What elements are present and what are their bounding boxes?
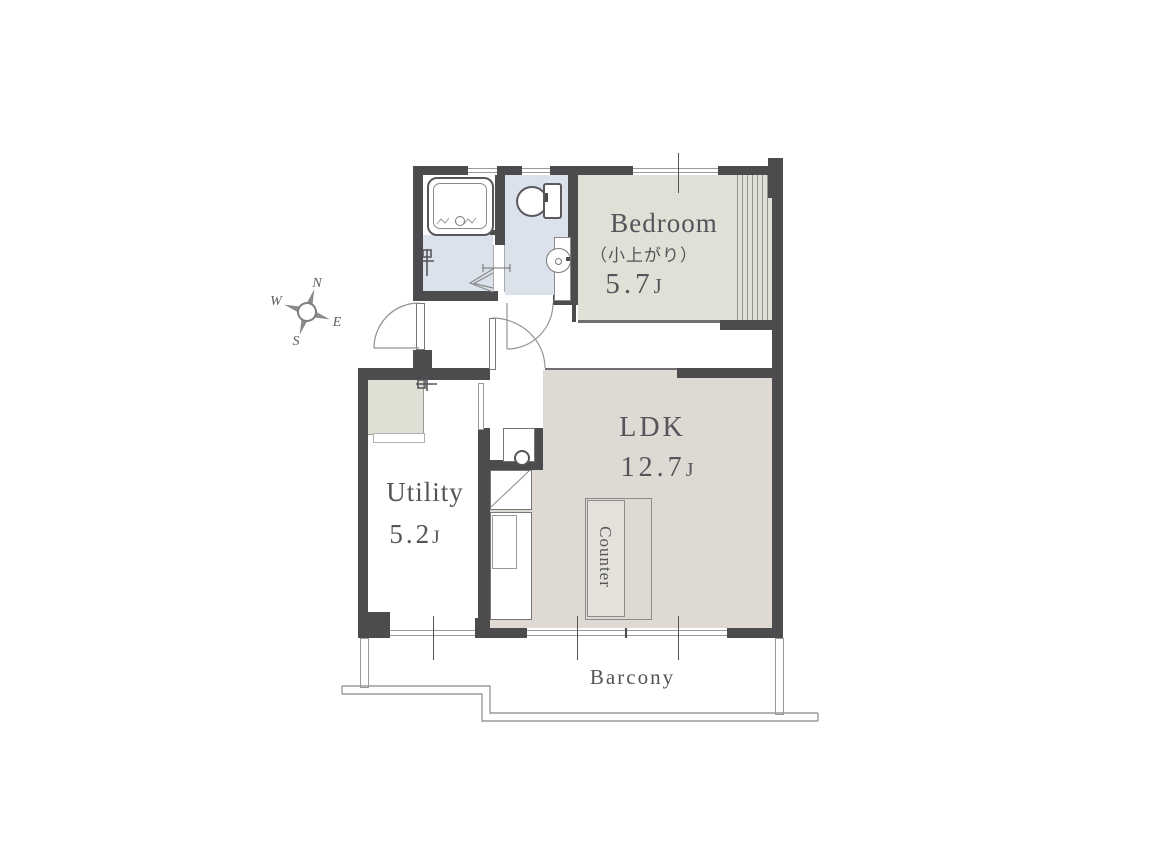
utility-label: Utility (355, 477, 495, 508)
compass-letter-s: S (293, 334, 300, 349)
utility-closet-tray (373, 433, 425, 443)
window-tick-ldk-left (577, 616, 578, 660)
pier-bottom-left (358, 612, 390, 628)
ldk-label: LDK (590, 412, 715, 444)
bedroom-label: Bedroom (574, 208, 754, 239)
wall-washroom-bottom (413, 291, 498, 301)
utility-area-label: 5.2J (350, 519, 480, 550)
refrigerator-space-icon (490, 470, 532, 510)
counter-label: Counter (595, 526, 615, 588)
wall-bedroom-bottom (720, 320, 772, 330)
washbasin-dot (555, 258, 562, 265)
compass-letter-e: E (332, 315, 342, 330)
wall-bottom-c (727, 628, 783, 638)
ldk-top-edge (545, 368, 677, 370)
wall-bath-toilet-divider (495, 166, 505, 245)
bedroom-step-edge (578, 320, 720, 323)
doorway-frame-right (504, 245, 505, 292)
wall-bottom-a (358, 628, 390, 638)
kitchen-counter-inner (492, 515, 517, 569)
window-tick-bedroom (678, 153, 679, 193)
window-tick-utility (433, 616, 434, 660)
window-bathroom (468, 166, 497, 175)
utility-sliding-door (478, 383, 484, 430)
ldk-door-arc (492, 318, 545, 368)
entrance-door-arc (374, 303, 419, 348)
window-toilet (522, 166, 550, 175)
compass-letter-w: W (270, 294, 283, 309)
window-ldk (527, 628, 727, 638)
wall-bedroom-left-thin (572, 303, 576, 322)
floor-plan-canvas: N E S W Bedroom （小上がり） 5.7J LDK 12.7J Ut… (0, 0, 1152, 864)
wall-top-c (550, 166, 633, 175)
toilet-door-arc (507, 303, 553, 349)
wall-utility-top (358, 368, 490, 380)
window-ldk-stile (625, 628, 627, 638)
bedroom-step-stripes (733, 175, 770, 322)
window-tick-ldk-right (678, 616, 679, 660)
pier-top-right (768, 158, 783, 198)
entrance-door-leaf (416, 303, 425, 350)
ldk-area-label: 12.7J (585, 452, 730, 484)
balcony-outline (342, 686, 818, 721)
wall-ldk-top (677, 368, 772, 378)
doorway-frame-left (493, 245, 494, 292)
toilet-button (545, 193, 548, 202)
balcony-post-right (775, 638, 784, 715)
bathtub-drain (455, 216, 465, 226)
bedroom-note-label: （小上がり） (564, 241, 724, 266)
utility-closet (367, 378, 424, 435)
wall-bottom-b (475, 628, 527, 638)
ldk-door-leaf (489, 318, 496, 370)
kitchen-sink-icon (514, 450, 530, 466)
compass-icon: N E S W (270, 276, 342, 349)
bedroom-area-label: 5.7J (564, 268, 704, 301)
window-bedroom (633, 166, 718, 175)
room-washroom-floor (423, 235, 493, 291)
compass-letter-n: N (311, 276, 322, 291)
wall-right (772, 166, 783, 638)
wall-bath-left (413, 166, 423, 301)
pier-kitchen-bottom (475, 618, 490, 628)
balcony-post-left (360, 638, 369, 688)
balcony-label: Barcony (540, 665, 725, 690)
